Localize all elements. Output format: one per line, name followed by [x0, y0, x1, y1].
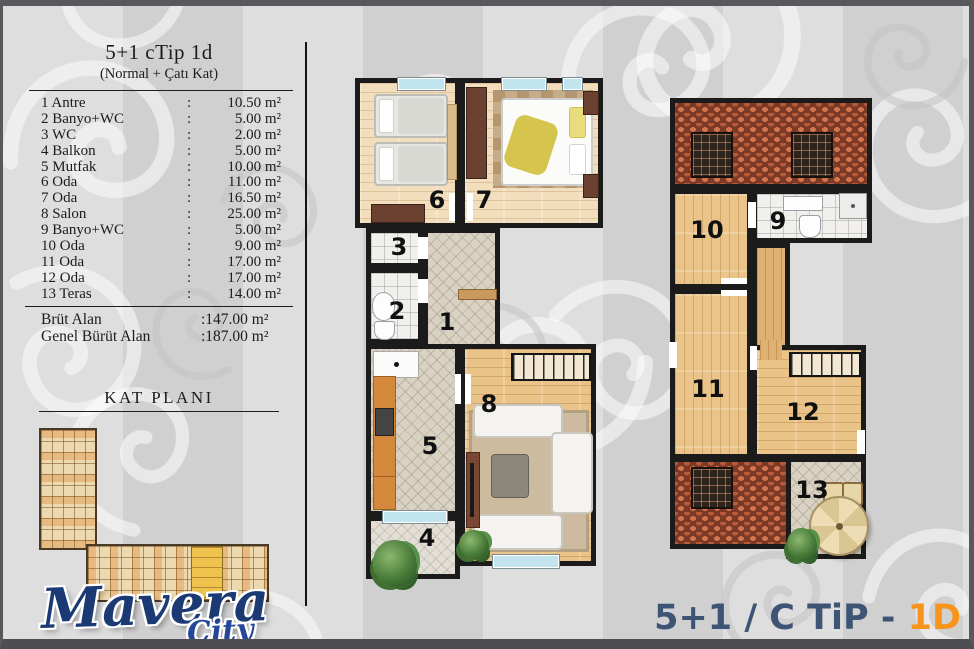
staircase: [789, 352, 861, 377]
armchair: [551, 432, 593, 514]
total-label: Genel Bürüt Alan: [41, 328, 201, 346]
room-row-label: 3 WC: [41, 128, 187, 144]
wardrobe: [466, 87, 487, 179]
room-row-area: 17.00 m²: [201, 271, 281, 287]
room-row-area: 16.50 m²: [201, 191, 281, 207]
divider-line: [25, 306, 293, 307]
door-opening: [721, 290, 747, 296]
door-opening: [748, 202, 756, 228]
colon: :: [187, 191, 201, 207]
colon: :: [187, 239, 201, 255]
room-row-area: 14.00 m²: [201, 287, 281, 303]
room-row: 7 Oda:16.50 m²: [13, 191, 305, 207]
room-number-label: 4: [419, 524, 436, 552]
unit-type-text: 5+1 / C TiP -: [654, 598, 907, 638]
room-row-label: 13 Teras: [41, 287, 187, 303]
staircase: [511, 353, 591, 381]
room-row-area: 9.00 m²: [201, 239, 281, 255]
total-row: Brüt Alan:147.00 m²: [13, 311, 305, 329]
room-number-label: 1: [439, 308, 456, 336]
info-panel: 5+1 cTip 1d (Normal + Çatı Kat) 1 Antre:…: [13, 34, 305, 412]
kitchen-counter: [373, 351, 419, 378]
colon: :: [187, 255, 201, 271]
skylight: [691, 467, 733, 509]
room-number-label: 12: [786, 398, 819, 426]
colon: :: [187, 96, 201, 112]
room-row: 11 Oda:17.00 m²: [13, 255, 305, 271]
tv-unit: [466, 452, 480, 528]
door-opening: [465, 374, 471, 404]
room-row-area: 10.50 m²: [201, 96, 281, 112]
stove: [375, 408, 394, 436]
colon: :: [187, 223, 201, 239]
room-number-label: 11: [691, 375, 724, 403]
sink: [783, 196, 823, 211]
door-opening: [750, 346, 757, 370]
room-row-area: 25.00 m²: [201, 207, 281, 223]
room-row: 1 Antre:10.50 m²: [13, 96, 305, 112]
colon: :: [187, 144, 201, 160]
total-label: Brüt Alan: [41, 311, 201, 329]
pillow: [569, 144, 586, 175]
colon: :: [187, 175, 201, 191]
plant: [373, 540, 417, 588]
shower: [839, 193, 867, 219]
window: [383, 511, 447, 523]
room-number-label: 6: [429, 186, 446, 214]
room-row: 5 Mutfak:10.00 m²: [13, 160, 305, 176]
plant: [459, 530, 489, 560]
unit-type-title: 5+1 / C TiP - 1D: [603, 598, 961, 638]
room-row-label: 4 Balkon: [41, 144, 187, 160]
room-number-label: 3: [391, 233, 408, 261]
section-title: KAT PLANI: [13, 388, 305, 408]
parasol-umbrella: [809, 496, 869, 556]
door-opening: [857, 430, 865, 454]
side-table: [447, 104, 457, 180]
skylight: [691, 132, 733, 178]
dresser: [371, 204, 425, 223]
skylight: [791, 132, 833, 178]
coffee-table: [491, 454, 529, 498]
room-number-label: 9: [770, 207, 787, 235]
divider-line: [39, 411, 279, 412]
room-row: 2 Banyo+WC:5.00 m²: [13, 112, 305, 128]
room-row-area: 5.00 m²: [201, 144, 281, 160]
colon: :: [187, 271, 201, 287]
room-number-label: 10: [690, 216, 723, 244]
door-opening: [455, 374, 461, 404]
room-row-area: 2.00 m²: [201, 128, 281, 144]
entry-door: [458, 289, 497, 300]
colon: :: [187, 128, 201, 144]
room-row: 6 Oda:11.00 m²: [13, 175, 305, 191]
attic-corridor: [757, 248, 785, 350]
door-opening: [418, 237, 428, 259]
total-row: Genel Bürüt Alan:187.00 m²: [13, 328, 305, 346]
nightstand: [583, 174, 599, 198]
room-row-label: 2 Banyo+WC: [41, 112, 187, 128]
room-row-area: 5.00 m²: [201, 112, 281, 128]
room-row-label: 7 Oda: [41, 191, 187, 207]
total-value: :147.00 m²: [201, 311, 269, 329]
panel-divider-line: [305, 42, 307, 606]
plan-title: 5+1 cTip 1d: [13, 40, 305, 65]
room-row-area: 17.00 m²: [201, 255, 281, 271]
room-row: 13 Teras:14.00 m²: [13, 287, 305, 303]
floorplan-sheet: 5+1 cTip 1d (Normal + Çatı Kat) 1 Antre:…: [0, 0, 974, 649]
single-bed: [374, 94, 448, 138]
room-11-bedroom: [675, 294, 747, 454]
room-row-label: 8 Salon: [41, 207, 187, 223]
corridor-opening: [760, 340, 782, 360]
colon: :: [187, 287, 201, 303]
divider-line: [29, 90, 293, 91]
room-row: 9 Banyo+WC:5.00 m²: [13, 223, 305, 239]
room-row: 8 Salon:25.00 m²: [13, 207, 305, 223]
room-row-label: 9 Banyo+WC: [41, 223, 187, 239]
window: [398, 78, 445, 90]
single-bed: [374, 142, 448, 186]
room-row: 10 Oda:9.00 m²: [13, 239, 305, 255]
brand-logo-sub: City: [186, 612, 254, 649]
window: [563, 78, 582, 90]
total-value: :187.00 m²: [201, 328, 269, 346]
plan-subtitle: (Normal + Çatı Kat): [13, 66, 305, 83]
window: [502, 78, 546, 90]
colon: :: [187, 112, 201, 128]
door-opening: [449, 193, 455, 221]
door-opening: [467, 193, 473, 221]
room-number-label: 5: [422, 432, 439, 460]
room-row: 3 WC:2.00 m²: [13, 128, 305, 144]
room-row-area: 10.00 m²: [201, 160, 281, 176]
room-row-label: 6 Oda: [41, 175, 187, 191]
kitchen-cabinet: [373, 476, 396, 510]
room-row-area: 5.00 m²: [201, 223, 281, 239]
toilet: [799, 215, 821, 238]
unit-type-highlight: 1D: [908, 598, 961, 638]
window-opening: [669, 342, 677, 368]
room-row-label: 12 Oda: [41, 271, 187, 287]
plant: [787, 528, 817, 562]
room-row: 4 Balkon:5.00 m²: [13, 144, 305, 160]
room-row-label: 11 Oda: [41, 255, 187, 271]
room-row-area: 11.00 m²: [201, 175, 281, 191]
door-opening: [721, 278, 747, 284]
nightstand: [583, 91, 599, 115]
colon: :: [187, 207, 201, 223]
window: [493, 555, 559, 568]
site-plan-vertical-block: [39, 428, 97, 550]
room-number-label: 7: [476, 186, 493, 214]
room-row-label: 1 Antre: [41, 96, 187, 112]
colon: :: [187, 160, 201, 176]
door-opening: [418, 279, 428, 303]
room-number-label: 13: [795, 476, 828, 504]
room-number-label: 8: [481, 390, 498, 418]
room-row: 12 Oda:17.00 m²: [13, 271, 305, 287]
room-row-label: 5 Mutfak: [41, 160, 187, 176]
room-number-label: 2: [389, 297, 406, 325]
room-row-label: 10 Oda: [41, 239, 187, 255]
